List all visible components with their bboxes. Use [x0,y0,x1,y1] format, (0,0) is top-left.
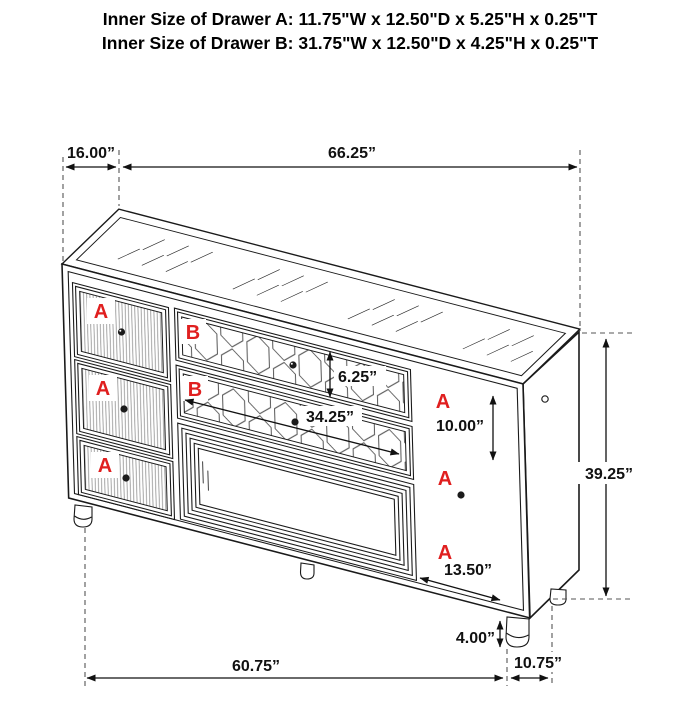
side-knob-hole [542,396,548,402]
label-drawer-a-left-3: A [98,455,112,477]
dim-leg-height-label: 4.00” [456,630,495,647]
dim-top-depth: 16.00” [66,145,116,167]
header-drawer-a-size: Inner Size of Drawer A: 11.75"W x 12.50"… [103,9,598,29]
dim-side-depth: 10.75” [508,652,568,678]
knob-a-right-2 [457,491,464,498]
knob-a-left-1 [118,328,125,335]
label-drawer-b-1: B [186,322,200,344]
leg-front-middle [301,563,315,579]
dim-cabinet-height-label: 39.25” [585,466,633,483]
label-drawer-a-left-2: A [96,378,110,400]
leg-back-right [550,589,566,605]
label-drawer-a-right-1: A [436,391,450,413]
dim-right-drawer-width-label: 13.50” [444,562,492,579]
knob-b-2 [291,418,298,425]
leg-front-left [74,505,92,527]
knob-highlight [291,363,293,365]
dim-top-width-label: 66.25” [328,145,376,162]
dim-leg-height: 4.00” [456,621,500,647]
dim-drawer-b-height-label: 6.25” [338,369,377,386]
knob-a-left-3 [122,474,129,481]
label-drawer-a-right-2: A [438,468,452,490]
leg-front-right [506,617,529,647]
dim-cabinet-height: 39.25” [577,339,640,596]
diagram-canvas: Inner Size of Drawer A: 11.75"W x 12.50"… [0,0,700,700]
dim-side-depth-label: 10.75” [514,655,562,672]
cabinet: A A A A A A B B [62,209,580,647]
header-drawer-b-size: Inner Size of Drawer B: 31.75"W x 12.50"… [102,33,598,53]
knob-highlight [119,330,121,332]
dim-base-width-label: 60.75” [232,658,280,675]
dim-right-drawer-height-label: 10.00” [436,418,484,435]
label-drawer-b-2: B [188,379,202,401]
dim-drawer-b-width-label: 34.25” [306,409,354,426]
label-drawer-a-left-1: A [94,301,108,323]
knob-b-1 [289,361,296,368]
dim-base-width: 60.75” [87,658,503,678]
dim-top-width: 66.25” [123,145,577,167]
furniture-dimension-diagram: Inner Size of Drawer A: 11.75"W x 12.50"… [0,0,700,700]
knob-a-left-2 [120,405,127,412]
dim-top-depth-label: 16.00” [67,145,115,162]
